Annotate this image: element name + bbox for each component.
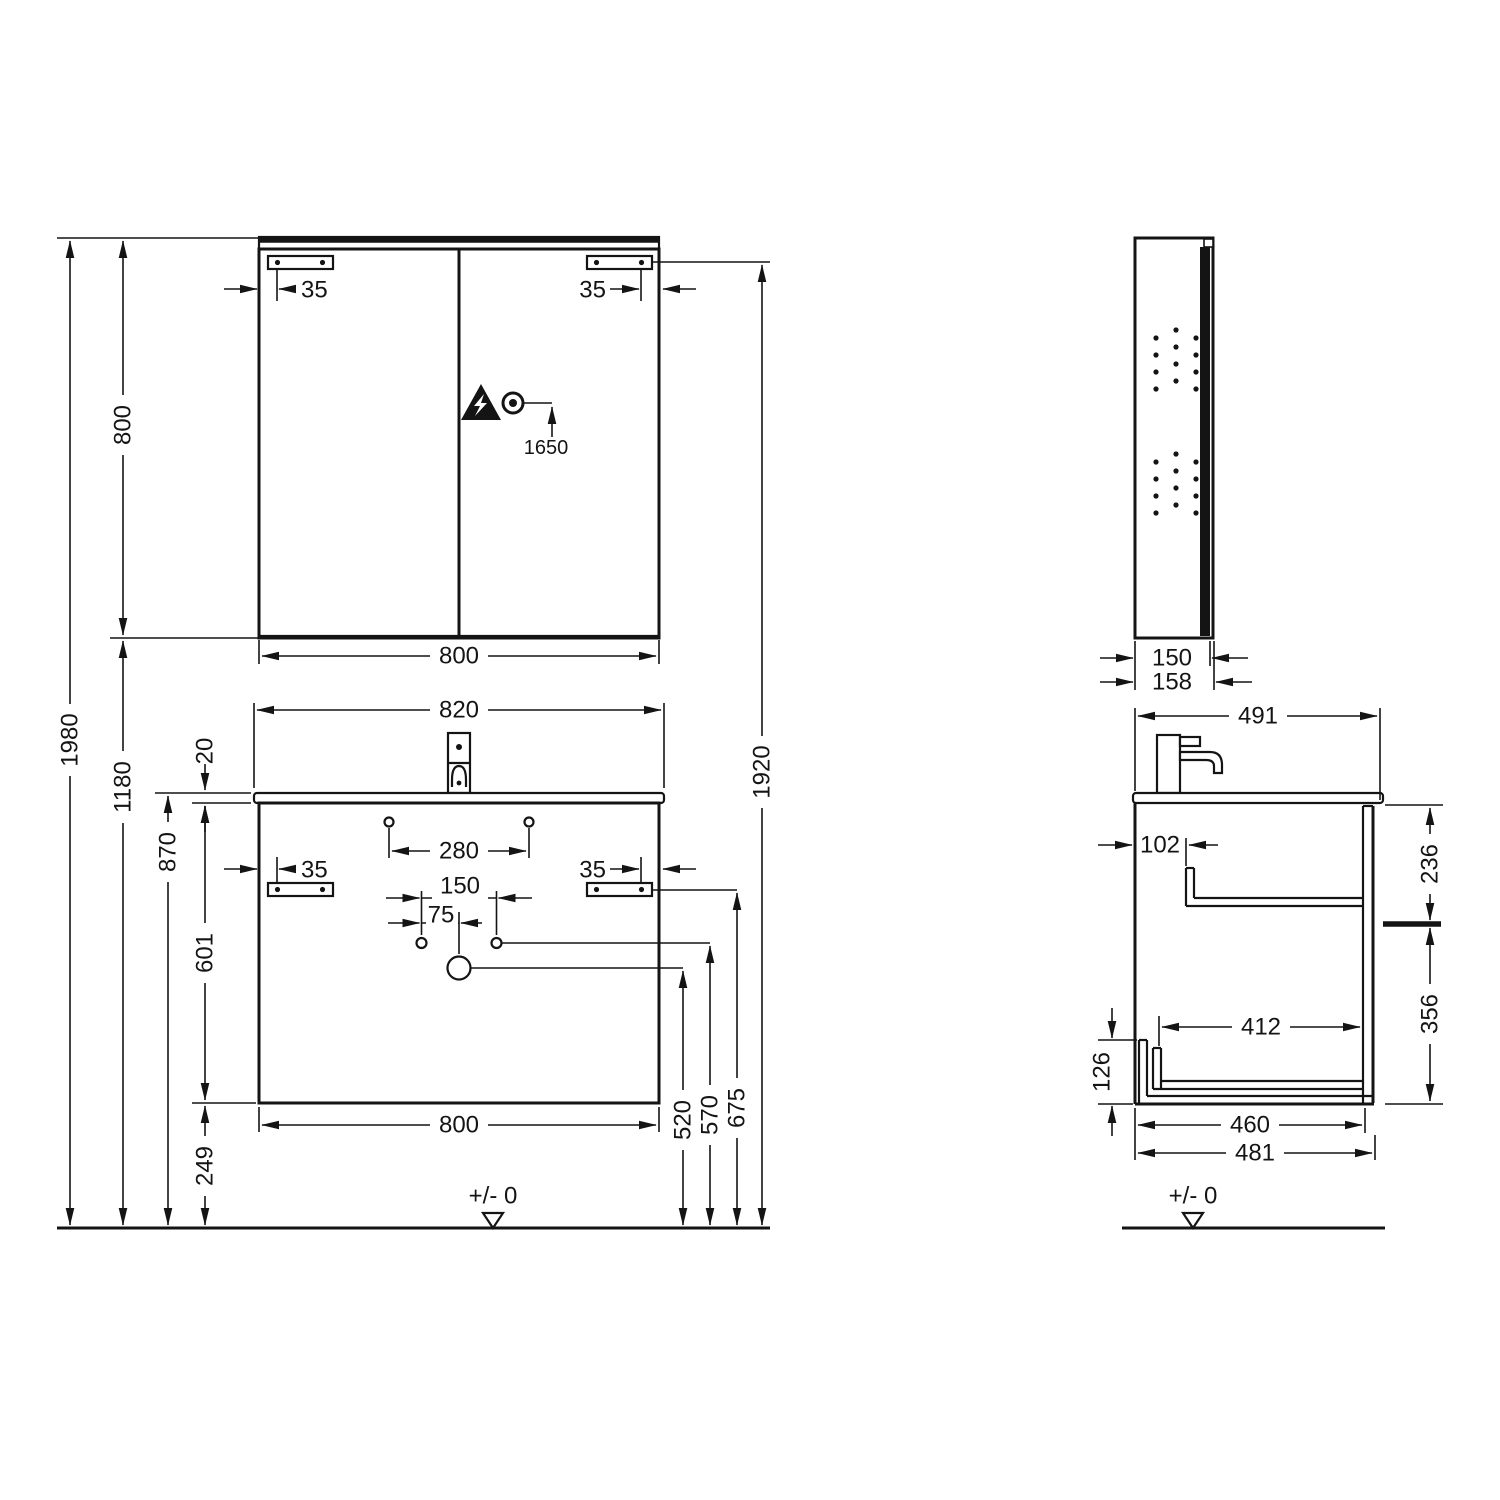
- level-triangle-icon-side: [1183, 1213, 1203, 1228]
- upper-drawer-profile: [1186, 868, 1363, 906]
- vanity-bracket-left: [268, 883, 333, 896]
- bottom-depth-dims: 460 481: [1135, 1108, 1375, 1167]
- dim-mirror-width-label: 800: [439, 643, 479, 670]
- dim-mirror-bracket-right-label: 35: [579, 277, 606, 304]
- left-dimension-chains: 1980 800 1180 870 20 601 249: [57, 238, 260, 1225]
- floor-level-marker-front: +/- 0: [469, 1183, 518, 1229]
- mirror-depth-dims: 150 158: [1100, 641, 1252, 696]
- dim-cabinet-height-label: 601: [192, 933, 219, 973]
- mirror-cabinet-front: [259, 237, 770, 638]
- mirror-glass: [1200, 247, 1210, 636]
- inner-depth-dim: 412: [1159, 1014, 1360, 1047]
- front-clearance-dim: 102: [1098, 832, 1218, 867]
- dim-vanity-bracket-left-label: 35: [301, 857, 328, 884]
- dim-cabinet-bottom-height-label: 249: [192, 1146, 219, 1186]
- dim-inner-depth-label: 412: [1241, 1014, 1281, 1041]
- mirror-width-dim: 800: [259, 640, 659, 670]
- dim-basin-thickness-label: 20: [192, 738, 219, 765]
- side-height-dims: 236 356: [1385, 805, 1444, 1104]
- dim-mirror-bottom-height-label: 1180: [110, 761, 137, 813]
- dim-basin-top-height-label: 870: [155, 832, 182, 872]
- dim-drain-offset-label: 75: [428, 902, 455, 929]
- dim-mirror-depth-label: 150: [1152, 645, 1192, 672]
- dim-bottom-depth-label: 460: [1230, 1112, 1270, 1139]
- mirror-bracket-right: [587, 256, 652, 269]
- vanity-side: [1133, 735, 1441, 1104]
- mirror-cabinet-side: [1135, 238, 1213, 638]
- vanity-front: [254, 733, 737, 1103]
- installation-drawing: 1650 35 35 800: [0, 0, 1500, 1500]
- dim-mirror-height-label: 800: [110, 405, 137, 445]
- dim-upper-height-label: 236: [1417, 844, 1444, 884]
- dim-mirror-bracket-height-label: 1920: [749, 745, 776, 798]
- dim-front-clearance-label: 102: [1140, 832, 1180, 859]
- dim-basin-width-label: 820: [439, 697, 479, 724]
- faucet-front: [448, 733, 470, 793]
- dim-tap-hole-spacing-label: 150: [440, 873, 480, 900]
- floor-level-marker-side: +/- 0: [1169, 1183, 1218, 1229]
- technical-drawing-page: 1650 35 35 800: [0, 0, 1500, 1500]
- dim-vanity-depth-label: 491: [1238, 703, 1278, 730]
- dim-bracket-height-label: 675: [724, 1088, 751, 1128]
- dim-mirror-bracket-left-label: 35: [301, 277, 328, 304]
- right-dimension-chains: 520 570 675 1920: [670, 265, 776, 1225]
- dim-mirror-depth-total-label: 158: [1152, 669, 1192, 696]
- dim-vanity-bracket-right-label: 35: [579, 857, 606, 884]
- dim-cabinet-width-label: 800: [439, 1112, 479, 1139]
- base-height-dim: 126: [1089, 1008, 1138, 1136]
- lower-drawer-profile: [1139, 1040, 1373, 1104]
- dim-hole-spacing-label: 280: [439, 838, 479, 865]
- floor-label-front: +/- 0: [469, 1183, 518, 1210]
- floor-label-side: +/- 0: [1169, 1183, 1218, 1210]
- basin-top-side: [1133, 793, 1383, 803]
- dim-total-height-label: 1980: [57, 713, 84, 766]
- front-view: 1650 35 35 800: [57, 237, 776, 1228]
- dim-outlet-height-label: 1650: [524, 437, 569, 459]
- side-view: 150 158: [1089, 238, 1444, 1228]
- cabinet-width-dim: 800: [259, 1107, 659, 1139]
- mirror-top-notch: [1204, 239, 1213, 247]
- mirror-bracket-left: [268, 256, 333, 269]
- dim-drain-height-label: 520: [670, 1100, 697, 1140]
- dim-lower-height-label: 356: [1417, 994, 1444, 1034]
- dim-overflow-height-label: 570: [697, 1095, 724, 1135]
- level-triangle-icon: [483, 1213, 503, 1228]
- dim-base-height-label: 126: [1089, 1052, 1116, 1092]
- dim-bottom-total-label: 481: [1235, 1140, 1275, 1167]
- vanity-bracket-right: [587, 883, 652, 896]
- cabinet-back-panel: [1363, 806, 1373, 1103]
- faucet-side: [1157, 735, 1222, 793]
